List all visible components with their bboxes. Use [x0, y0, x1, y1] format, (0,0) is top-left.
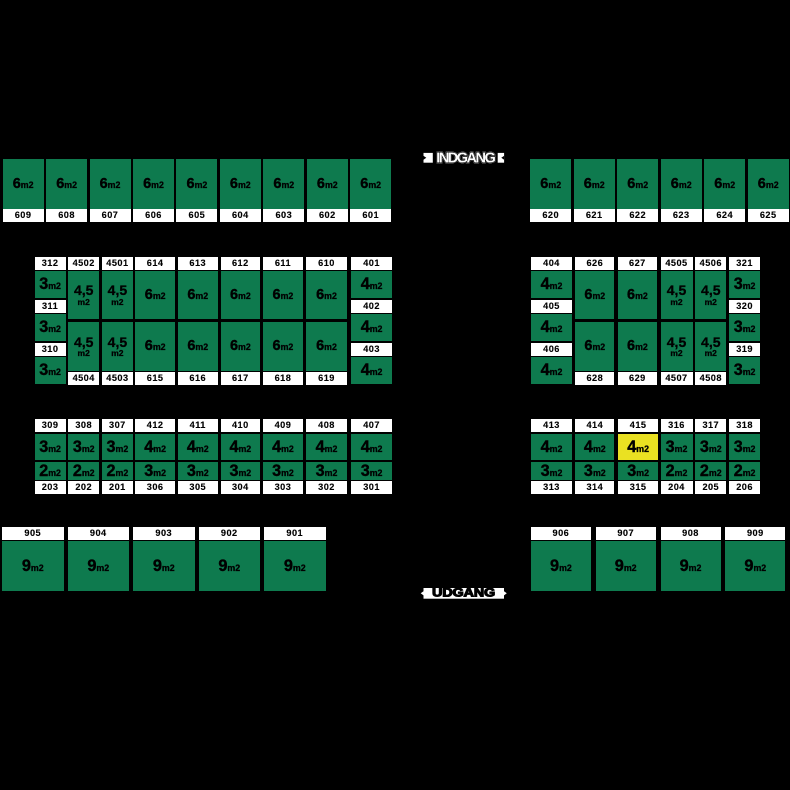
svg-text:INDGANG: INDGANG	[436, 150, 495, 166]
svg-text:UDGANG: UDGANG	[432, 586, 495, 600]
